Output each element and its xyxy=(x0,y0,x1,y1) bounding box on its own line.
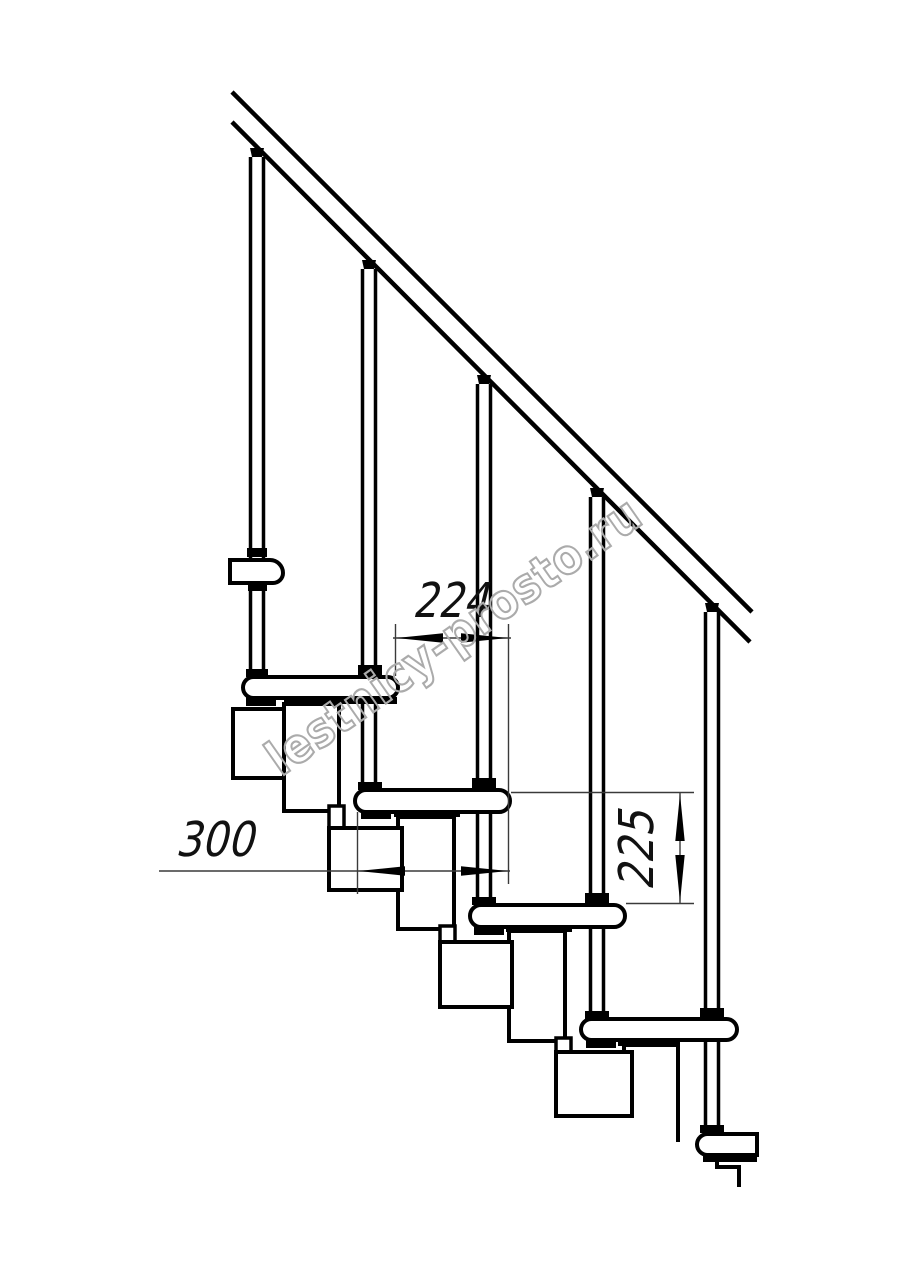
bracket-joint-upper xyxy=(247,548,267,557)
floor-step-edge xyxy=(717,1161,739,1187)
staircase-drawing-canvas: 224 300 225 lestnicy-prosto.ru xyxy=(0,0,914,1280)
module-vertical-3 xyxy=(509,931,565,1041)
foot-joint-5 xyxy=(700,1125,724,1133)
cross-joint-3 xyxy=(472,778,496,790)
tread-3 xyxy=(470,905,625,927)
module-back-2 xyxy=(329,828,402,890)
baluster-4 xyxy=(591,497,604,1015)
foot-joint-4 xyxy=(585,1011,609,1019)
watermark-text: lestnicy-prosto.ru xyxy=(256,486,653,787)
module-vertical-2 xyxy=(398,817,454,929)
foot-joint-1 xyxy=(246,669,268,677)
arrowhead-down xyxy=(675,855,684,902)
floor-mount xyxy=(697,1134,757,1187)
foot-joint-3 xyxy=(472,897,496,905)
arrowhead-right xyxy=(461,866,508,875)
module-back-4 xyxy=(556,1052,632,1116)
foot-joint-2 xyxy=(358,782,382,790)
dimension-225-label: 225 xyxy=(610,800,665,894)
tread-4 xyxy=(581,1019,737,1040)
baluster-bracket xyxy=(230,560,283,583)
dimension-300-label: 300 xyxy=(172,813,264,868)
module-back-3 xyxy=(440,942,512,1007)
arrowhead-up xyxy=(675,794,684,841)
cross-joint-4 xyxy=(585,893,609,905)
tread-2 xyxy=(355,790,510,812)
baluster-1 xyxy=(251,157,264,671)
mount-plate xyxy=(697,1134,757,1155)
staircase-drawing: 224 300 225 lestnicy-prosto.ru xyxy=(0,0,914,1280)
baluster-5 xyxy=(706,612,719,1129)
cross-joint-5 xyxy=(700,1008,724,1020)
